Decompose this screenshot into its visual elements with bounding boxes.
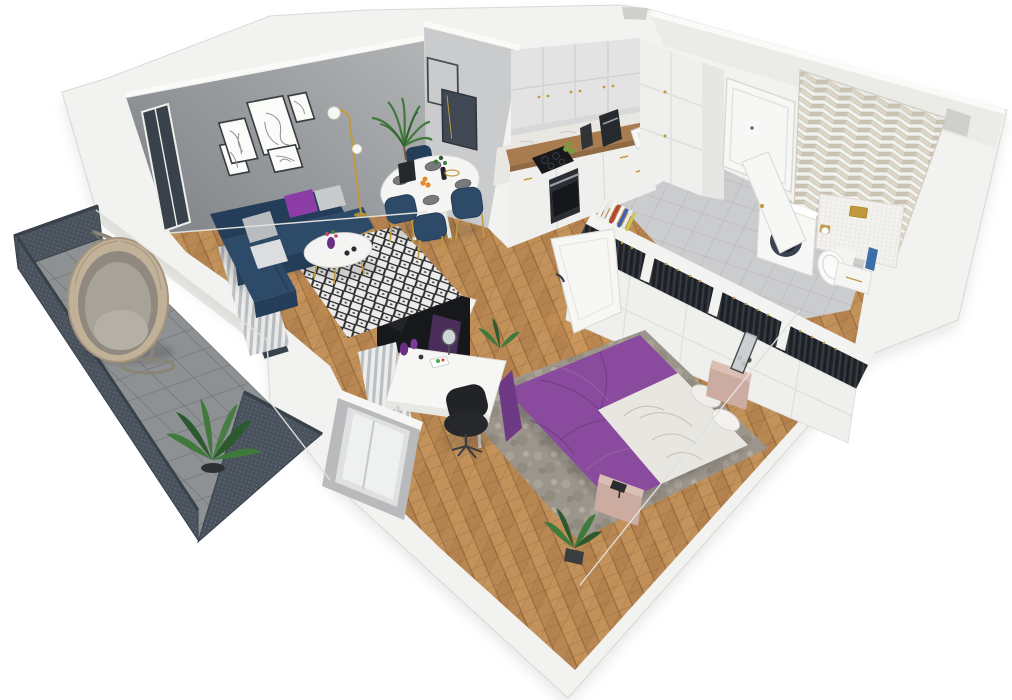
chair-seat [444, 411, 488, 437]
coffee-table-vase [327, 237, 335, 249]
gold-flush-plate [849, 206, 867, 218]
lamp-globe-2 [353, 145, 362, 154]
bathroom-door-handle [760, 204, 764, 208]
apartment-floorplan-render: 3D cutaway floor plan rendering of a one… [0, 0, 1012, 700]
egg-chair-seat [94, 310, 148, 350]
espresso-cup-1 [344, 250, 349, 255]
vanity-mirror [442, 329, 456, 345]
desk-figurine [419, 355, 424, 360]
vent-notch-top [622, 7, 648, 20]
lamp-globe-1 [328, 107, 340, 119]
palm-pot [398, 160, 416, 184]
espresso-cup-2 [351, 246, 356, 251]
purple-vase-2 [410, 339, 417, 349]
purple-vase-1 [400, 343, 408, 356]
apartment-render-canvas: 3D cutaway floor plan rendering of a one… [0, 0, 1012, 700]
picture-frame-5 [268, 145, 303, 172]
peephole [750, 126, 753, 129]
